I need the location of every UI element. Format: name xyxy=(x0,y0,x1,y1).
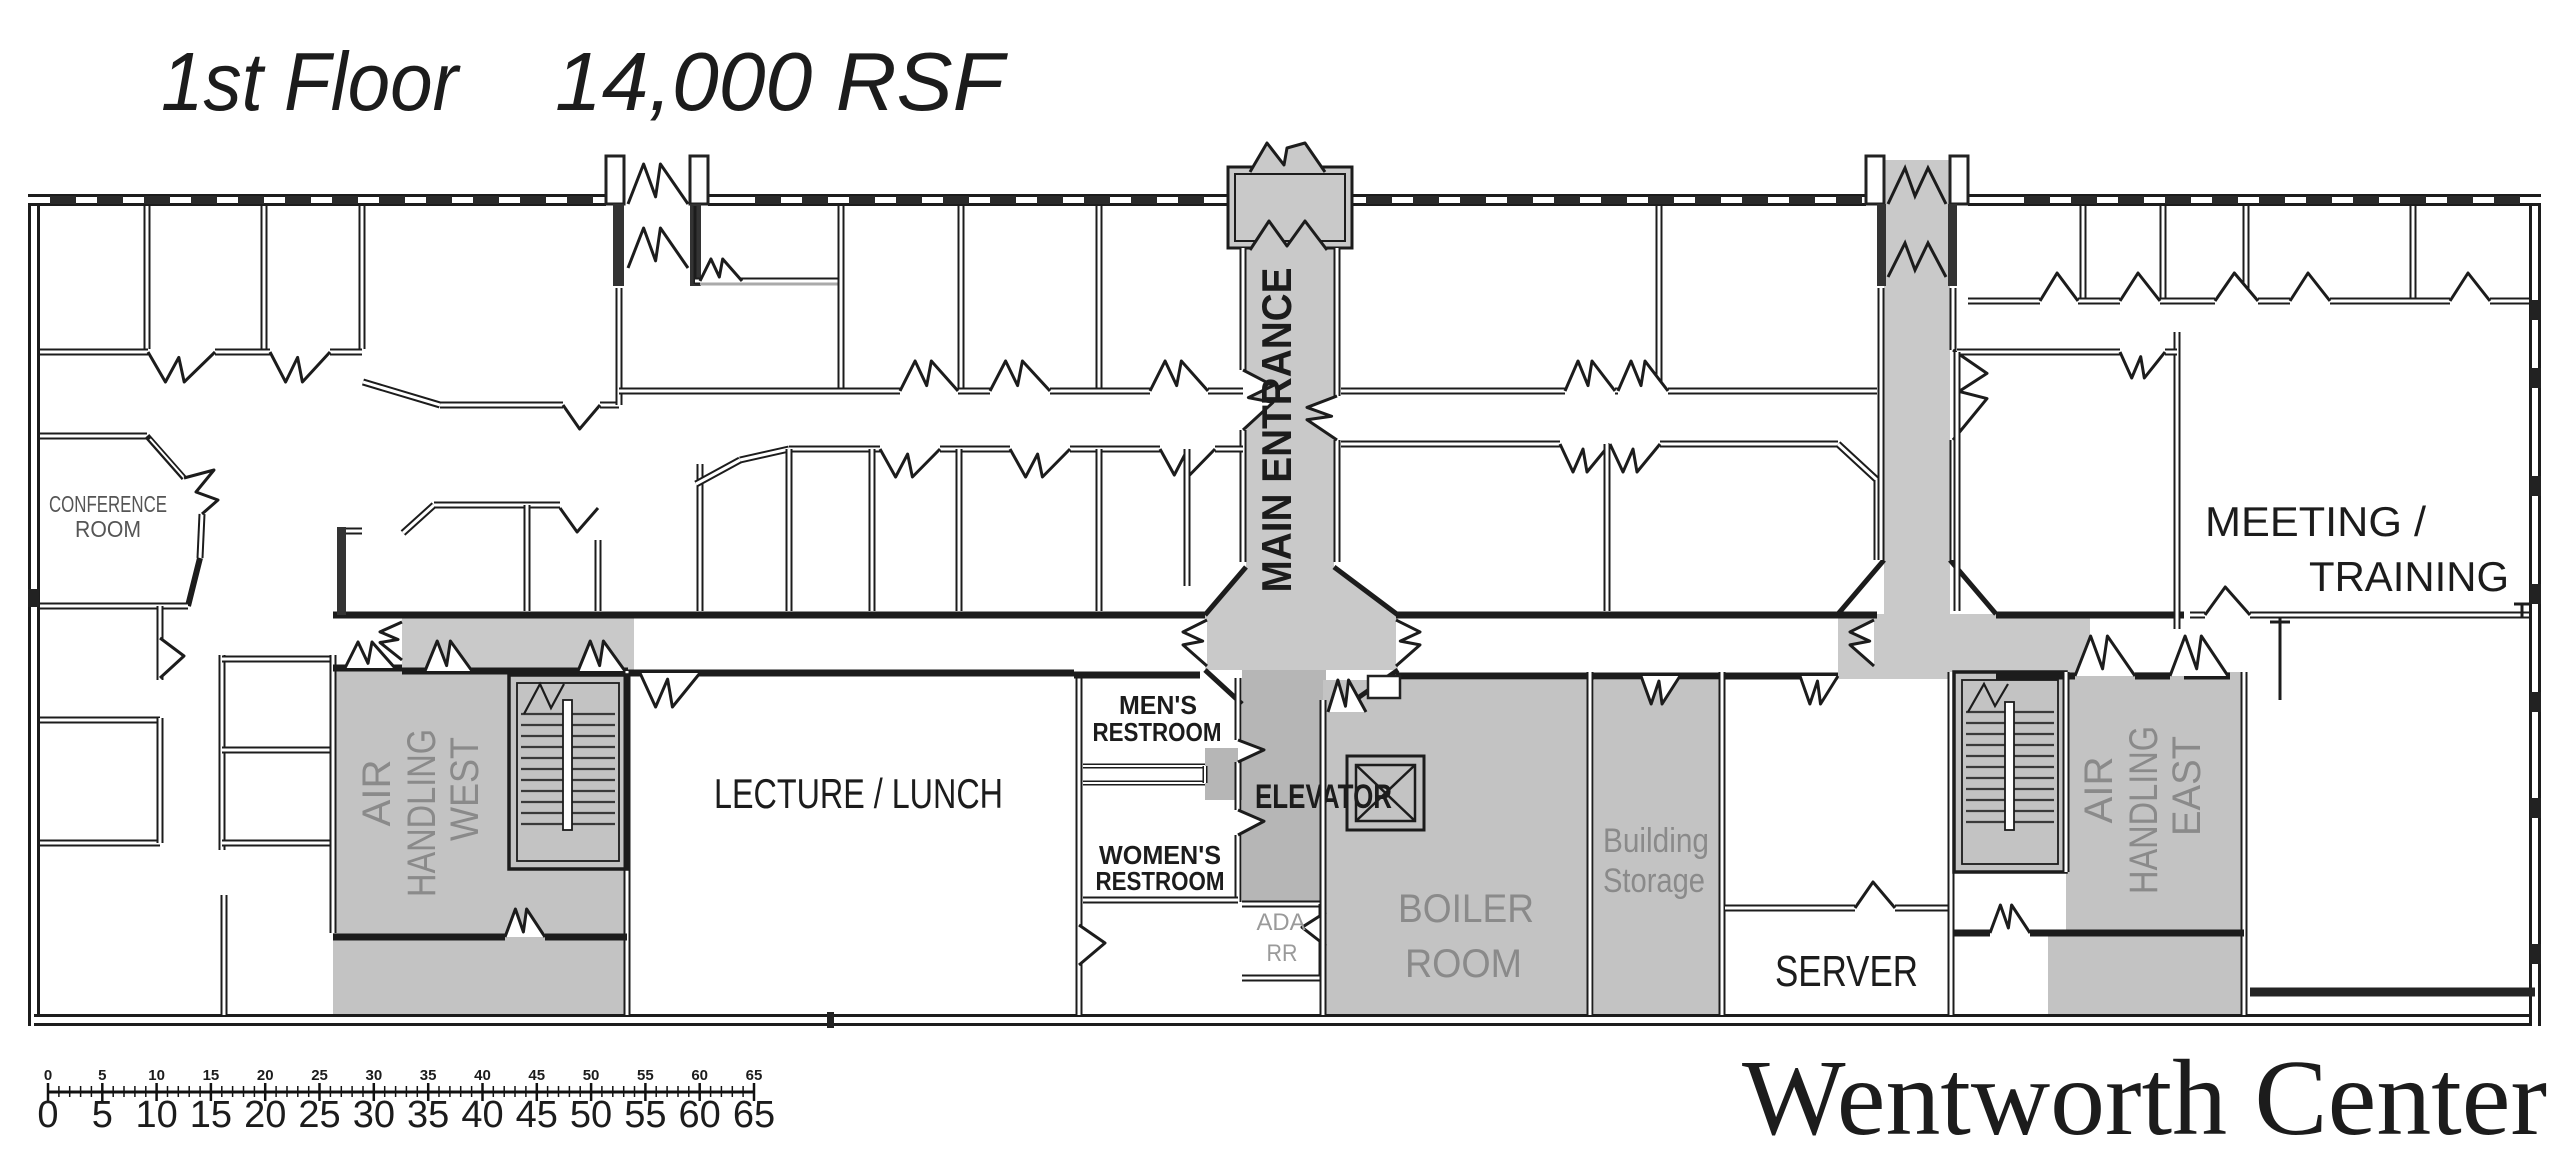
svg-text:HANDLING: HANDLING xyxy=(2122,726,2166,894)
svg-text:Storage: Storage xyxy=(1603,862,1705,900)
svg-text:25: 25 xyxy=(298,1094,340,1136)
svg-text:RR: RR xyxy=(1267,940,1298,967)
svg-text:40: 40 xyxy=(461,1094,503,1136)
svg-text:ROOM: ROOM xyxy=(1405,942,1522,986)
svg-text:0: 0 xyxy=(44,1067,52,1084)
svg-text:LECTURE / LUNCH: LECTURE / LUNCH xyxy=(714,770,1003,817)
svg-text:CONFERENCE: CONFERENCE xyxy=(49,491,167,517)
svg-text:20: 20 xyxy=(257,1067,274,1084)
svg-text:SERVER: SERVER xyxy=(1775,947,1918,996)
svg-text:0: 0 xyxy=(37,1094,58,1136)
svg-text:50: 50 xyxy=(583,1067,600,1084)
svg-text:10: 10 xyxy=(148,1067,165,1084)
svg-text:MEN'S: MEN'S xyxy=(1119,690,1197,720)
svg-text:60: 60 xyxy=(691,1067,708,1084)
svg-text:AIR: AIR xyxy=(355,760,399,827)
svg-text:45: 45 xyxy=(516,1094,558,1136)
svg-text:60: 60 xyxy=(679,1094,721,1136)
svg-text:MAIN ENTRANCE: MAIN ENTRANCE xyxy=(1253,268,1300,593)
svg-text:ADA: ADA xyxy=(1257,909,1306,936)
svg-text:55: 55 xyxy=(637,1067,654,1084)
svg-text:65: 65 xyxy=(733,1094,775,1136)
svg-text:30: 30 xyxy=(366,1067,383,1084)
svg-text:65: 65 xyxy=(746,1067,763,1084)
svg-text:40: 40 xyxy=(474,1067,491,1084)
svg-text:HANDLING: HANDLING xyxy=(400,729,444,897)
svg-text:RESTROOM: RESTROOM xyxy=(1096,866,1225,896)
svg-text:MEETING /: MEETING / xyxy=(2205,498,2426,545)
svg-text:BOILER: BOILER xyxy=(1398,887,1534,931)
svg-text:WEST: WEST xyxy=(443,737,487,841)
svg-text:15: 15 xyxy=(190,1094,232,1136)
svg-text:45: 45 xyxy=(528,1067,545,1084)
svg-text:EAST: EAST xyxy=(2165,736,2209,836)
svg-text:5: 5 xyxy=(92,1094,113,1136)
svg-text:5: 5 xyxy=(98,1067,106,1084)
svg-text:RESTROOM: RESTROOM xyxy=(1093,717,1222,747)
svg-text:14,000 RSF: 14,000 RSF xyxy=(555,35,1008,128)
svg-text:AIR: AIR xyxy=(2077,757,2121,824)
svg-text:50: 50 xyxy=(570,1094,612,1136)
svg-text:55: 55 xyxy=(624,1094,666,1136)
svg-text:25: 25 xyxy=(311,1067,328,1084)
svg-text:1st Floor: 1st Floor xyxy=(161,35,461,128)
svg-text:10: 10 xyxy=(135,1094,177,1136)
svg-text:15: 15 xyxy=(203,1067,220,1084)
svg-text:Wentworth Center: Wentworth Center xyxy=(1742,1039,2547,1158)
svg-text:35: 35 xyxy=(420,1067,437,1084)
svg-text:30: 30 xyxy=(353,1094,395,1136)
svg-text:Building: Building xyxy=(1603,822,1709,860)
svg-text:TRAINING: TRAINING xyxy=(2309,553,2509,600)
svg-text:35: 35 xyxy=(407,1094,449,1136)
svg-text:20: 20 xyxy=(244,1094,286,1136)
svg-text:ROOM: ROOM xyxy=(75,516,141,542)
